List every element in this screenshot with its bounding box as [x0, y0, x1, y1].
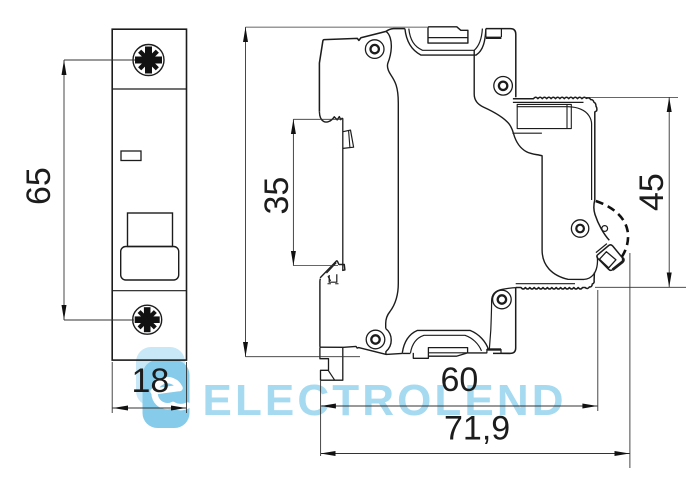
svg-text:60: 60: [441, 361, 479, 399]
svg-text:18: 18: [132, 362, 170, 400]
svg-text:65: 65: [20, 167, 58, 205]
svg-text:71,9: 71,9: [444, 410, 510, 448]
svg-text:35: 35: [258, 177, 296, 215]
svg-text:45: 45: [633, 173, 671, 211]
